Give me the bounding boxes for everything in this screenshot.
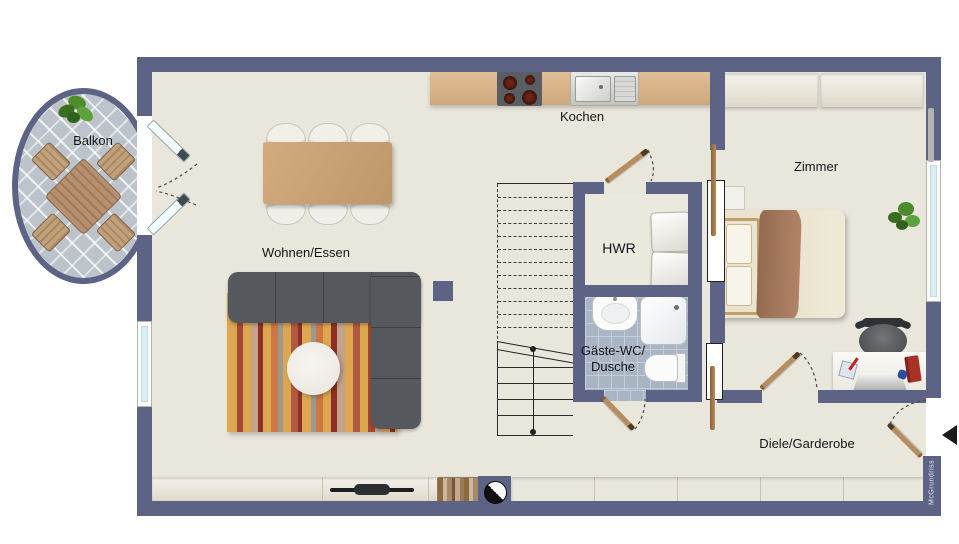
stair-tread (498, 210, 573, 211)
washer-icon (650, 211, 690, 252)
staircase (497, 183, 574, 436)
wall-left (137, 57, 152, 116)
balcony-door-opening (137, 116, 152, 235)
wall-hwr-top (573, 182, 604, 194)
stair-walk-dot (530, 346, 536, 352)
wall-top (137, 57, 941, 72)
room-label-hwr: HWR (602, 240, 635, 256)
stair-tread (498, 236, 573, 237)
stair-walk-line (533, 349, 534, 433)
stair-tread (498, 435, 573, 436)
wall-wc-bottom (646, 390, 700, 402)
room-label-zimmer: Zimmer (794, 159, 838, 175)
wall-left (137, 235, 152, 321)
watermark: McGrundriss (923, 456, 941, 508)
plant-icon (58, 96, 96, 130)
window-slider (928, 108, 934, 162)
bed-blanket (756, 210, 802, 318)
stair-tread (498, 262, 573, 263)
tv-body (354, 484, 390, 495)
stair-edge (497, 344, 498, 436)
window-left (137, 321, 152, 407)
plant-leaf (67, 112, 80, 123)
basin-faucet (613, 297, 617, 301)
room-label-wohnen-essen: Wohnen/Essen (262, 245, 350, 261)
bed (716, 210, 845, 318)
sink-drainboard (614, 76, 636, 102)
sliding-door (710, 366, 715, 430)
plant-leaf (896, 220, 908, 230)
stair-tread (498, 301, 573, 302)
room-label-kochen: Kochen (560, 109, 604, 125)
stove-burner (504, 93, 515, 104)
wall-left (137, 407, 152, 501)
stair-tread (498, 415, 573, 416)
column-marker-icon (484, 481, 507, 504)
stair-tread (498, 288, 573, 289)
shower-drain (674, 305, 679, 310)
stair-tread (498, 223, 573, 224)
wall-hwr-right (688, 182, 702, 402)
window-glass (930, 165, 937, 297)
wardrobe (821, 73, 923, 107)
shower-icon (640, 296, 687, 345)
stove-burner (503, 76, 517, 90)
hall-closet (512, 477, 926, 501)
wall-right (926, 302, 941, 398)
stair-tread (498, 399, 573, 400)
wall-bottom (137, 501, 941, 516)
bathroom-floor (604, 390, 646, 401)
stair-tread (498, 275, 573, 276)
sliding-door-pocket (707, 180, 725, 282)
room-label-gaeste-wc: Gäste-WC/ Dusche (581, 343, 645, 375)
window-glass (141, 326, 148, 402)
plant-icon (888, 200, 922, 234)
entrance-arrow-icon (942, 425, 957, 445)
window-right (926, 160, 941, 302)
sideboard (152, 477, 478, 501)
stair-tread (498, 327, 573, 328)
entry-door-opening (926, 398, 941, 458)
bed-pillow (726, 224, 752, 264)
sliding-door (711, 144, 716, 236)
stove-icon (497, 70, 542, 106)
toilet-bowl (644, 354, 678, 382)
wall-bedroom-left (710, 280, 725, 343)
bed-pillow (726, 266, 752, 306)
sideboard-divider (322, 477, 323, 501)
toilet-icon (644, 352, 685, 382)
stair-tread (498, 249, 573, 250)
wall-hwr-wc-divider (585, 285, 688, 297)
stair-break-line (497, 349, 575, 364)
room-label-gaeste-wc-line1: Gäste-WC/ (581, 343, 645, 359)
wall-bedroom-bottom (818, 390, 926, 403)
stair-walk-dot (530, 429, 536, 435)
wall-kitchen-bedroom (710, 72, 725, 150)
sideboard-divider (428, 477, 429, 501)
basin-bowl (601, 303, 630, 324)
sink-faucet (599, 85, 603, 89)
room-label-balkon: Balkon (73, 133, 113, 149)
wall-bedroom-bottom (717, 390, 762, 403)
sofa (371, 272, 421, 429)
wall-wc-bottom (573, 390, 604, 402)
tv-icon (330, 483, 414, 497)
floor-plan: McGrundriss Balkon Kochen Zimmer Wohnen/… (0, 0, 959, 544)
kitchen-sink-icon (570, 71, 639, 106)
coffee-table (287, 342, 340, 395)
room-label-gaeste-wc-line2: Dusche (581, 359, 645, 375)
book-icon (904, 355, 921, 383)
stove-burner (522, 90, 537, 105)
books-icon (437, 477, 479, 503)
wardrobe (717, 73, 818, 107)
washbasin-icon (592, 294, 638, 331)
stair-tread (498, 383, 573, 384)
pillar (433, 281, 453, 301)
sink-basin (575, 76, 611, 102)
stair-tread (498, 367, 573, 368)
room-label-diele: Diele/Garderobe (759, 436, 854, 452)
stove-burner (525, 75, 535, 85)
stair-tread (498, 314, 573, 315)
dining-table (263, 142, 392, 204)
stair-tread (498, 197, 573, 198)
stair-edge (497, 184, 498, 344)
